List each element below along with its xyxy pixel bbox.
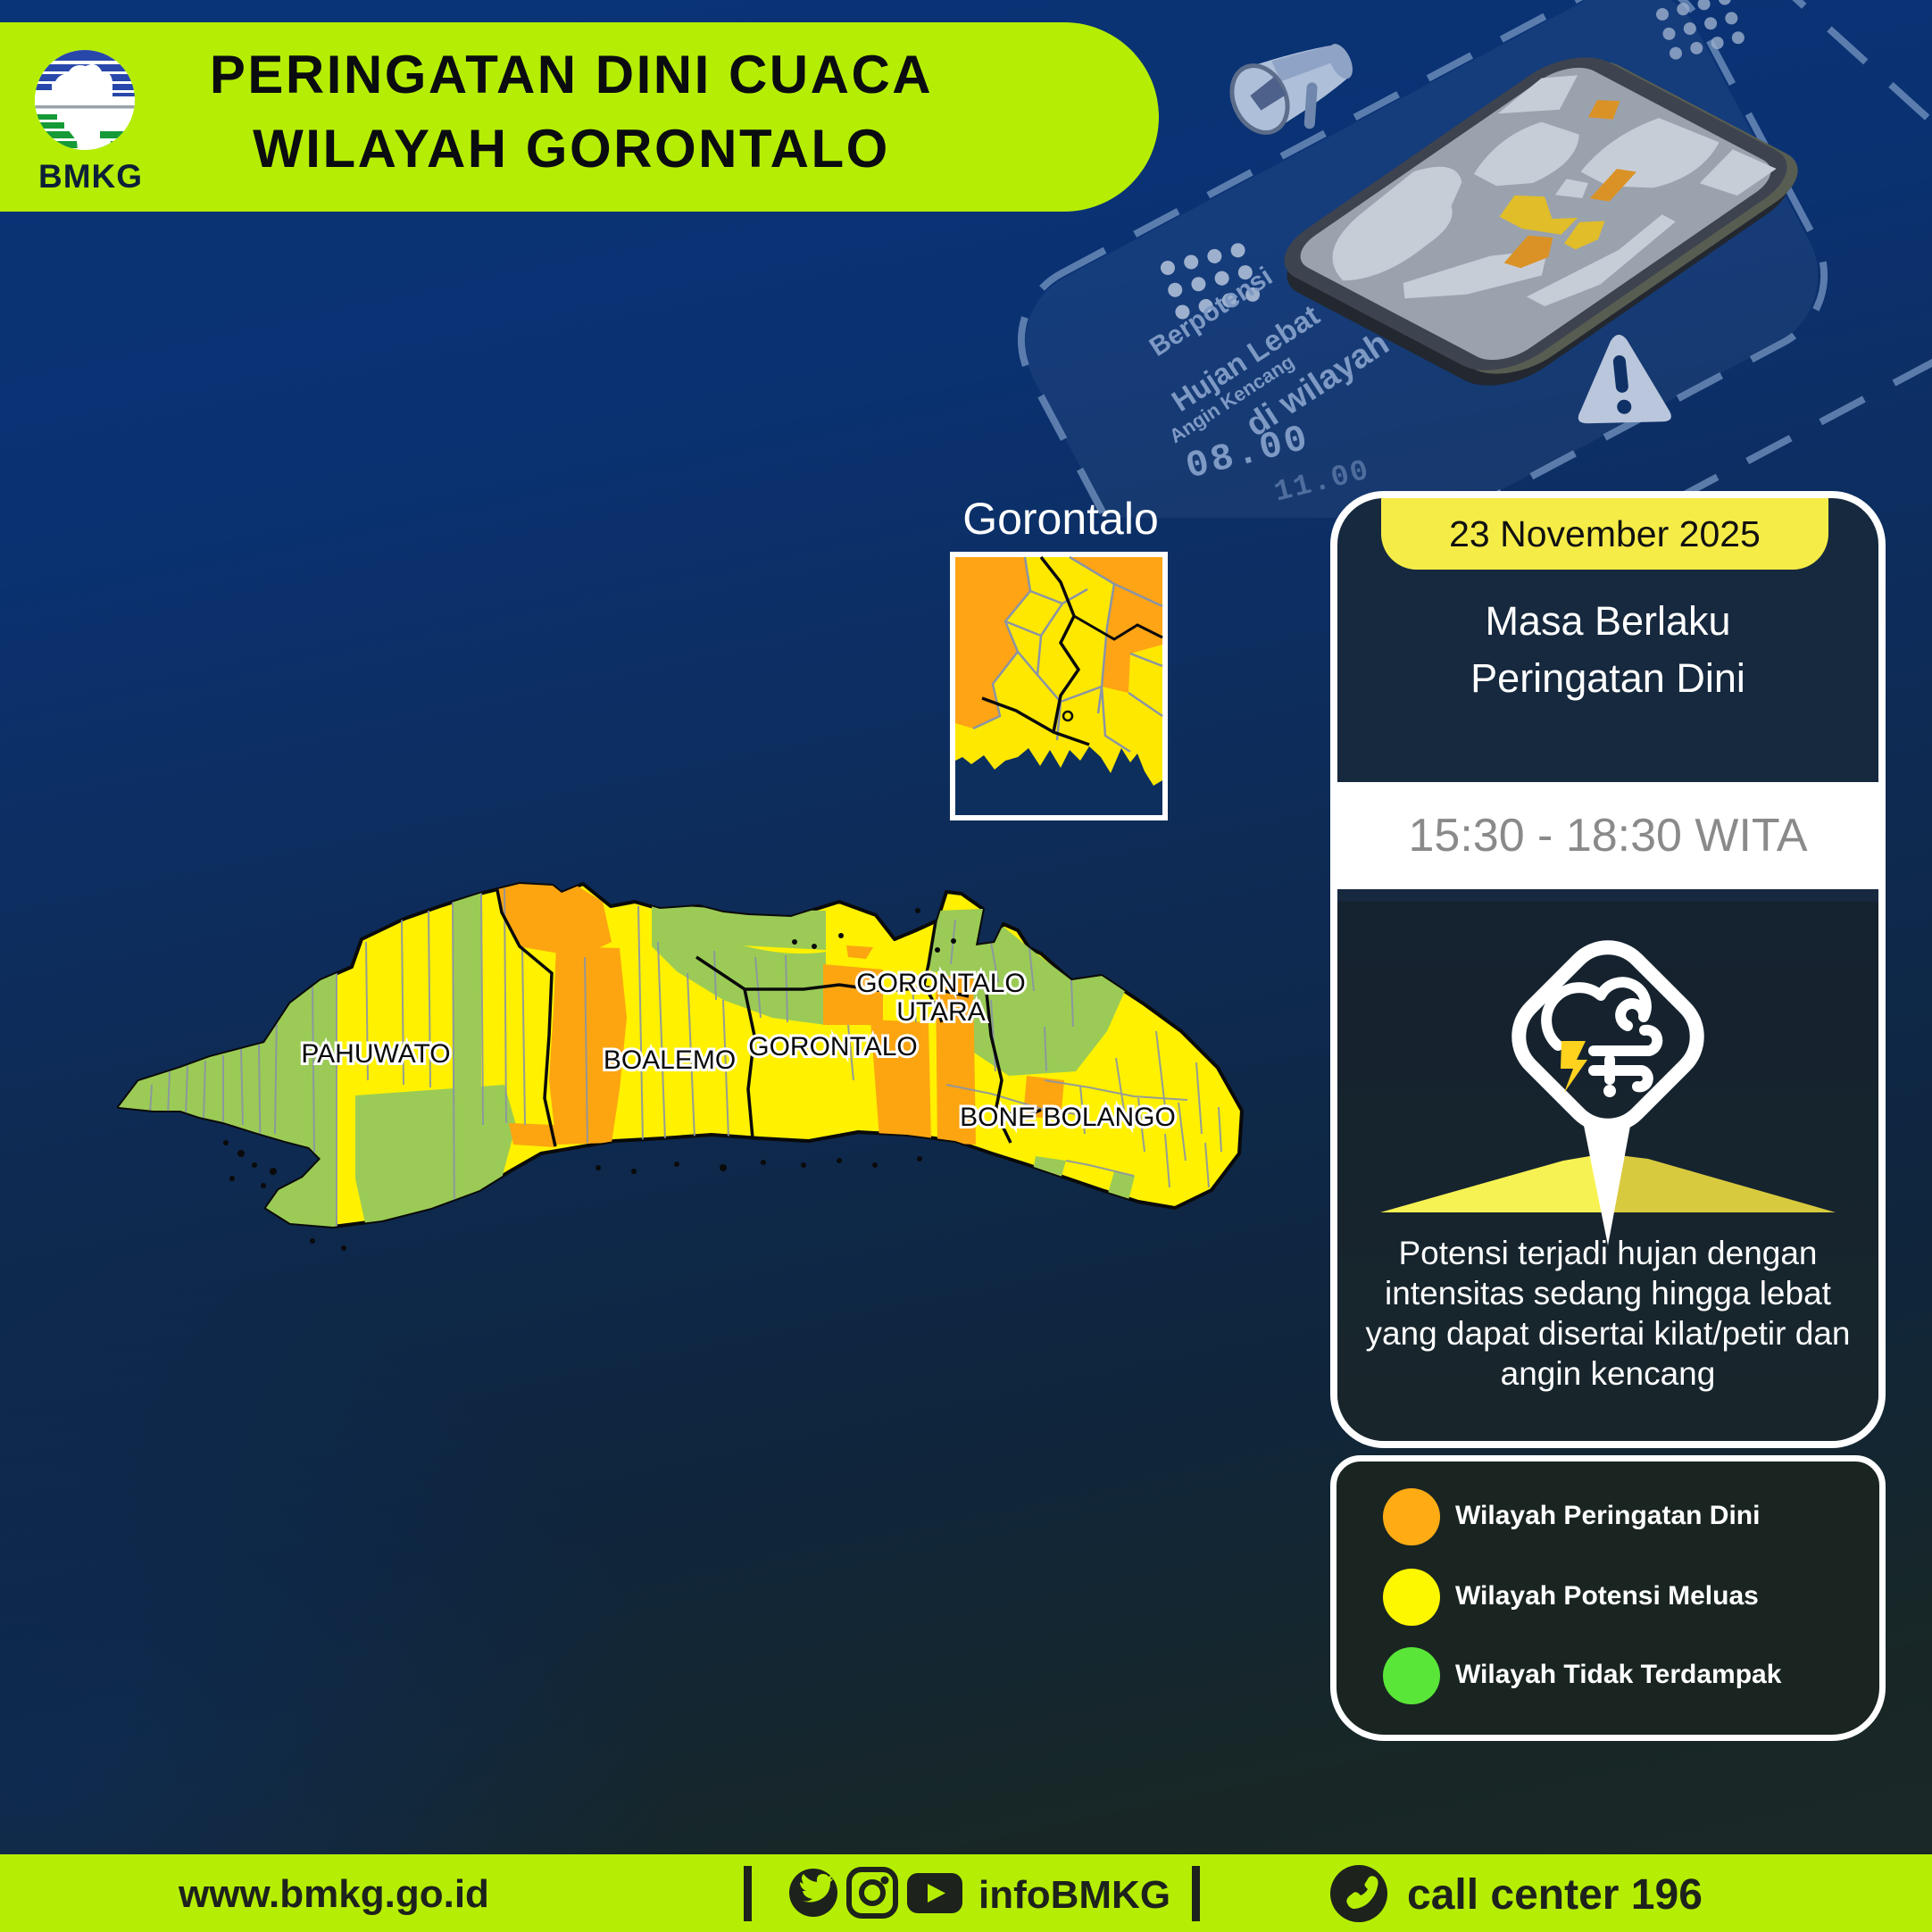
svg-text:BONE BOLANGO: BONE BOLANGO (960, 1103, 1176, 1132)
svg-text:UTARA: UTARA (896, 997, 985, 1027)
svg-text:BMKG: BMKG (38, 158, 143, 192)
svg-text:GORONTALO: GORONTALO (748, 1032, 917, 1062)
svg-text:PAHUWATO: PAHUWATO (301, 1039, 450, 1069)
svg-text:BOALEMO: BOALEMO (604, 1045, 736, 1075)
svg-text:GORONTALO: GORONTALO (856, 969, 1025, 998)
